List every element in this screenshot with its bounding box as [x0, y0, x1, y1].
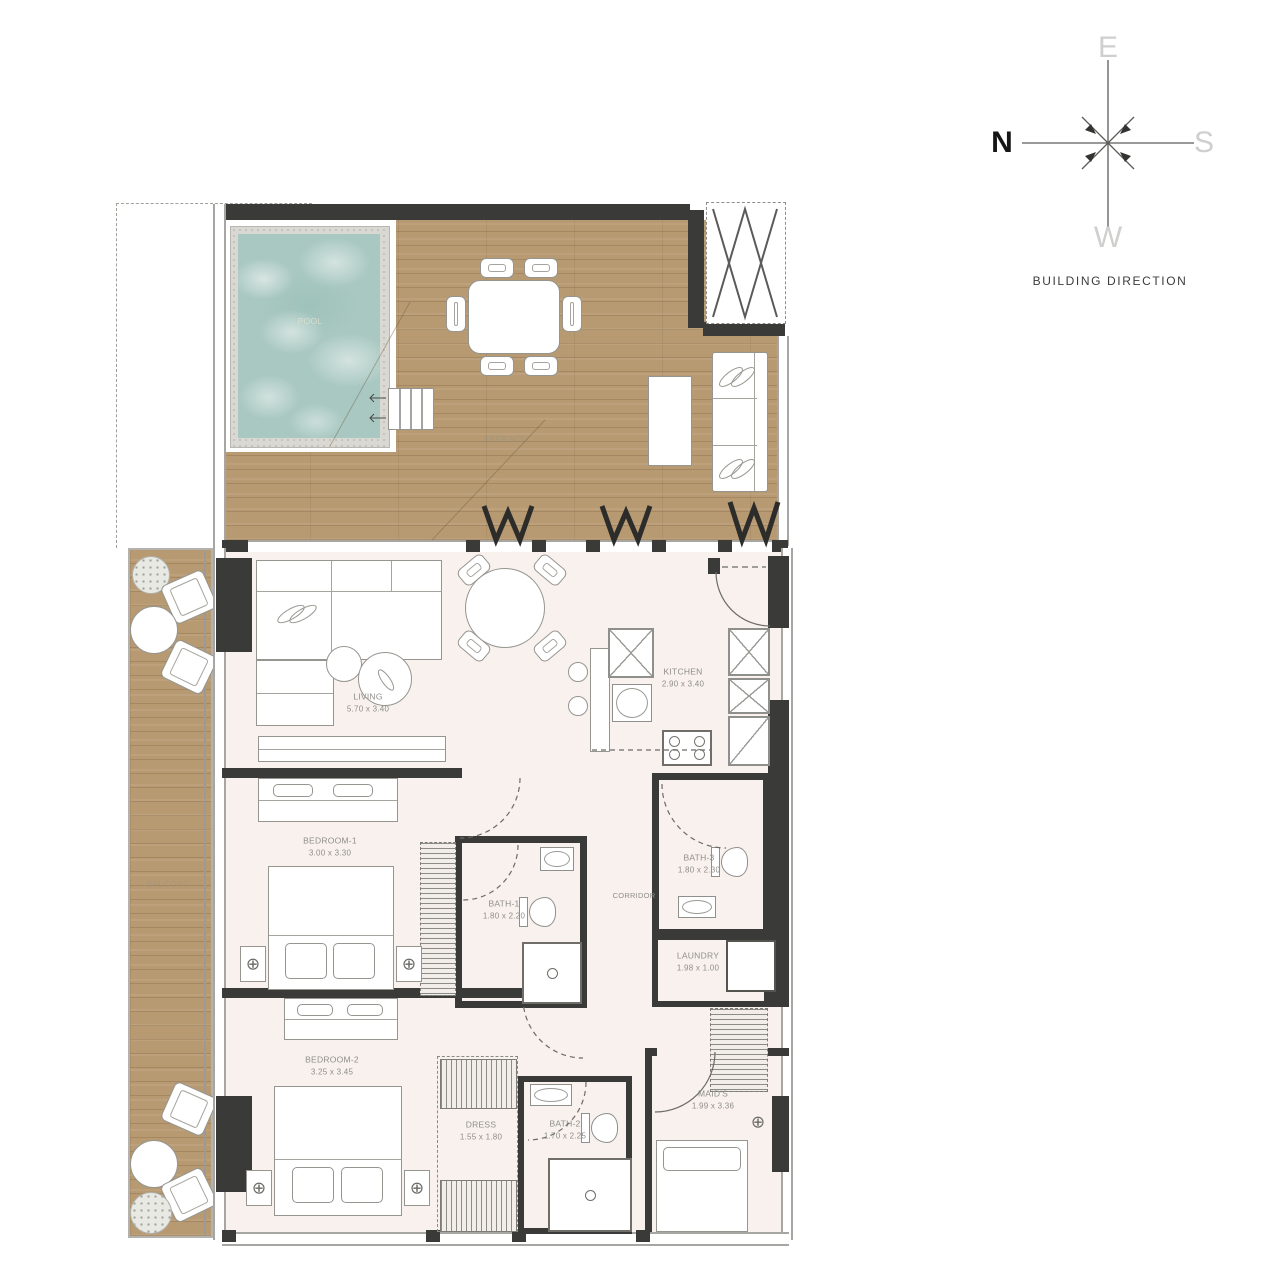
pool-steps	[388, 388, 434, 430]
ceiling-light-icon: ⊕	[751, 1114, 765, 1131]
tv-console	[258, 736, 446, 762]
pillow	[333, 943, 375, 979]
wall-closet-bottom	[703, 322, 785, 336]
room-label-terrace: TERRACE	[484, 434, 526, 446]
washing-machine	[726, 940, 776, 992]
bedroom2-bed	[274, 1086, 402, 1216]
shaft-void	[706, 202, 786, 324]
kitchen-island	[590, 648, 610, 752]
room-label-corridor: CORRIDOR	[613, 891, 656, 902]
ceiling-light-icon: ⊕	[410, 1180, 424, 1197]
maids-bed	[656, 1140, 748, 1232]
wall-pier	[216, 558, 252, 652]
wall-mullion	[586, 540, 600, 552]
terrace-chair	[524, 258, 558, 278]
living-pouf	[326, 646, 362, 682]
leaf-decor-icon	[717, 359, 757, 395]
wall-pool-left	[213, 204, 226, 548]
room-label-kitchen: KITCHEN 2.90 x 3.40	[662, 666, 704, 689]
wardrobe-bedroom1	[420, 842, 456, 996]
dining-table	[465, 568, 545, 648]
room-label-bedroom2: BEDROOM-2 3.25 x 3.45	[305, 1054, 359, 1077]
wall-terrace-right	[777, 336, 789, 546]
terrace-coffee-table	[648, 376, 692, 466]
balcony-table	[130, 606, 178, 654]
kitchen-stool	[568, 696, 588, 716]
terrace-chair	[446, 296, 466, 332]
terrace-dining-table	[468, 280, 560, 354]
bedroom2-dresser	[284, 998, 398, 1040]
shower-icon	[522, 942, 582, 1004]
pillow	[341, 1167, 383, 1203]
plot-boundary-left	[116, 203, 117, 548]
terrace-chair	[480, 356, 514, 376]
room-label-pool: POOL	[298, 316, 323, 328]
wall-mullion	[466, 540, 480, 552]
wall-maids-left	[645, 1048, 652, 1232]
room-label-living: LIVING 5.70 x 3.40	[347, 691, 389, 714]
wall-closet-vertical	[688, 210, 704, 328]
pool	[238, 234, 380, 438]
room-label-bedroom1: BEDROOM-1 3.00 x 3.30	[303, 835, 357, 858]
wardrobe-dress-bottom	[440, 1180, 517, 1232]
compass-rose: N E S W	[988, 20, 1232, 270]
wardrobe-maids	[710, 1008, 768, 1092]
room-label-bath1: BATH-1 1.80 x 2.20	[483, 898, 525, 921]
kitchen-tall-cabinet	[728, 716, 770, 766]
terrace-chair	[480, 258, 514, 278]
wall-mullion	[222, 1230, 236, 1242]
wall-maids-top-a	[645, 1048, 657, 1056]
terrace-sofa	[712, 352, 768, 492]
wall-living-bedroom1	[222, 768, 462, 778]
bedroom1-dresser	[258, 778, 398, 822]
wardrobe-dress-top	[440, 1059, 517, 1109]
pillow	[663, 1147, 741, 1171]
living-sofa	[256, 560, 442, 660]
wall-mullion	[718, 540, 732, 552]
terrace-chair	[524, 356, 558, 376]
room-label-bath3: BATH-3 1.80 x 2.30	[678, 852, 720, 875]
kitchen-cabinet	[608, 628, 654, 678]
room-label-laundry: LAUNDRY 1.98 x 1.00	[677, 950, 719, 973]
sink-icon	[540, 847, 574, 871]
building-direction-caption: BUILDING DIRECTION	[988, 274, 1232, 288]
shower-icon	[548, 1158, 632, 1232]
kitchen-tall-cabinet	[728, 628, 770, 676]
kitchen-tall-cabinet	[728, 678, 770, 714]
toilet-icon	[581, 1113, 621, 1143]
bedroom1-bed	[268, 866, 394, 990]
wall-bottom	[222, 1232, 789, 1246]
compass-west: W	[1094, 221, 1122, 255]
sink-icon	[678, 896, 716, 918]
compass-east: E	[1098, 31, 1118, 65]
pillow	[292, 1167, 334, 1203]
pillow	[285, 943, 327, 979]
leaf-decor-icon	[717, 451, 757, 487]
compass-south: S	[1194, 126, 1214, 160]
shaft-diagonals-icon	[707, 203, 784, 322]
wall-pier	[772, 1096, 789, 1172]
ceiling-light-icon: ⊕	[402, 956, 416, 973]
ceiling-light-icon: ⊕	[246, 956, 260, 973]
wall-mullion	[532, 540, 546, 552]
living-chaise	[256, 660, 334, 726]
room-label-balcony: BALCONY	[147, 879, 189, 891]
compass-north: N	[991, 126, 1013, 160]
terrace-chair	[562, 296, 582, 332]
room-label-bath2: BATH-2 1.70 x 2.25	[544, 1118, 586, 1141]
leaf-decor-icon	[275, 599, 319, 629]
plant-icon	[130, 1192, 172, 1234]
floorplan-page: POOL TERRACE	[0, 0, 1268, 1266]
entry-door-leaf	[708, 558, 720, 574]
wall-pier	[768, 556, 789, 628]
kitchen-stove	[662, 730, 712, 766]
kitchen-stool	[568, 662, 588, 682]
wall-mullion	[652, 540, 666, 552]
sink-icon	[530, 1084, 572, 1106]
wall-pier	[768, 700, 789, 776]
room-label-dress: DRESS 1.55 x 1.80	[460, 1119, 502, 1142]
wall-terrace-top	[222, 204, 690, 220]
ceiling-light-icon: ⊕	[252, 1180, 266, 1197]
kitchen-sink	[612, 684, 652, 722]
room-label-maids: MAID'S 1.99 x 3.36	[692, 1088, 734, 1111]
